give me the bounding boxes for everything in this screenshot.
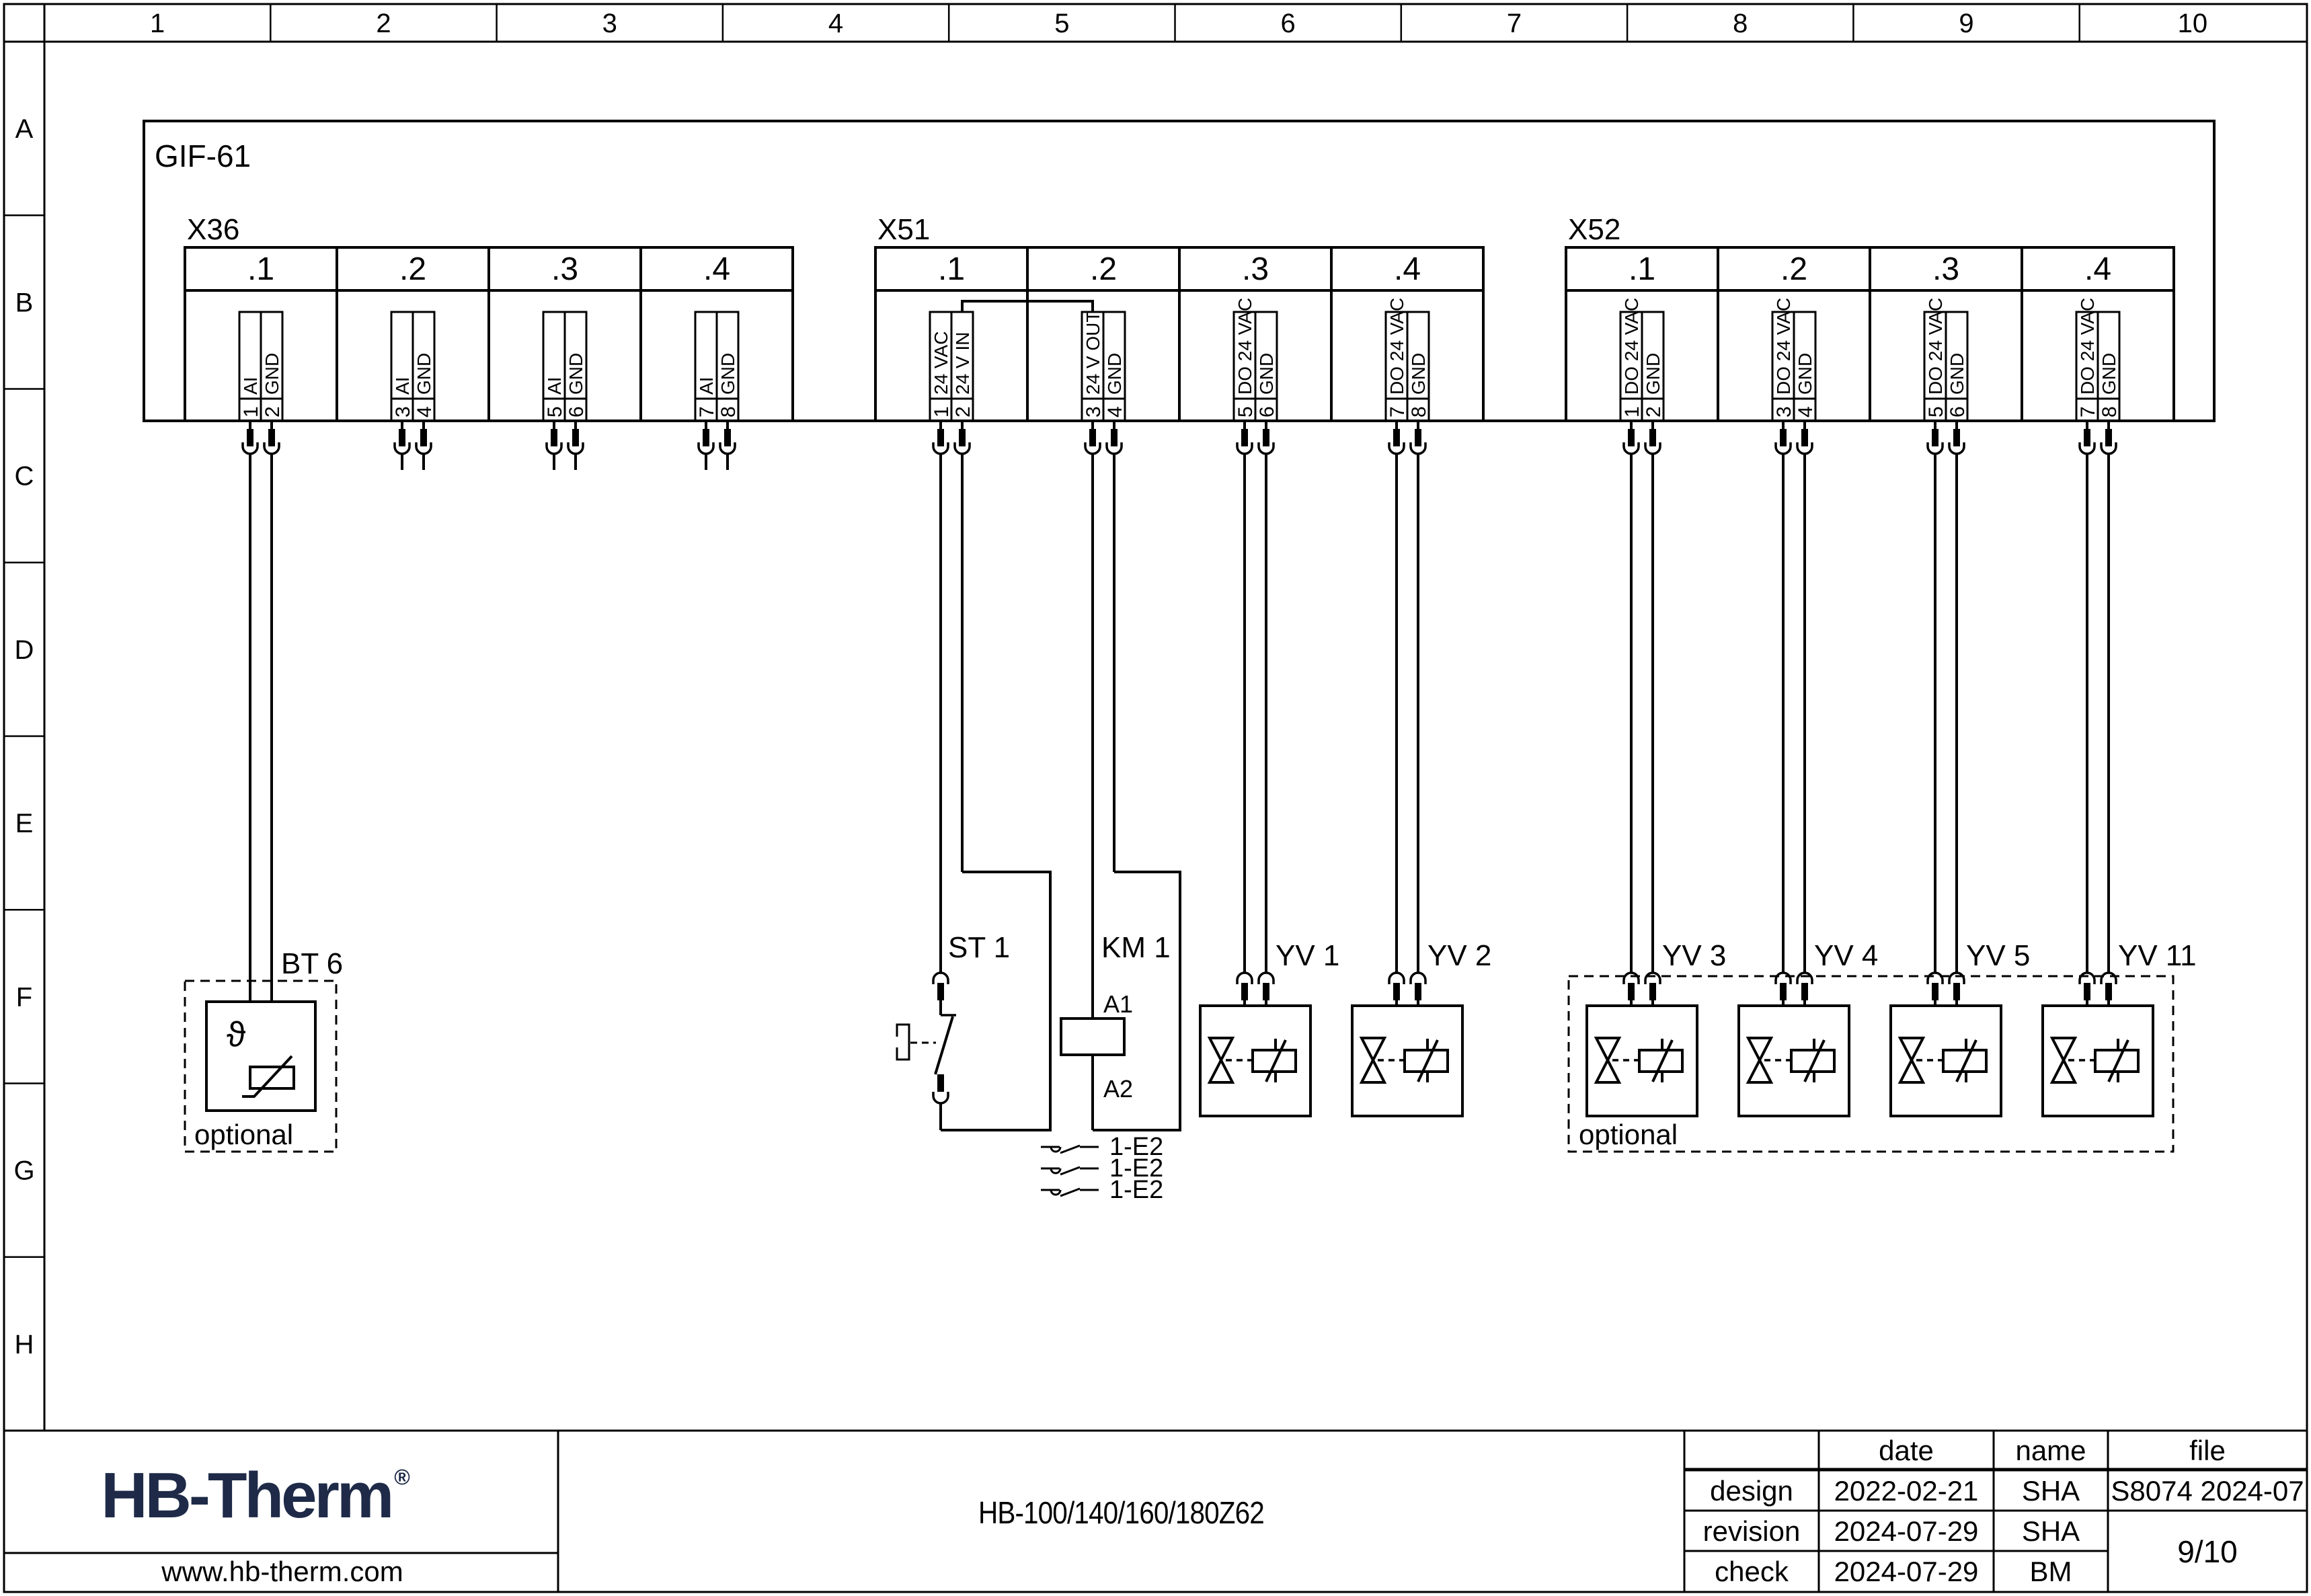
- plug-pin-icon: [551, 429, 557, 446]
- plug-pin-icon: [1801, 983, 1808, 1000]
- st1-label: ST 1: [948, 931, 1010, 964]
- ruler-column-label: 7: [1507, 9, 1522, 38]
- solenoid-coil-icon: [1405, 1050, 1448, 1072]
- company-logo: HB-Therm®: [67, 1452, 444, 1540]
- plug-pin-icon: [703, 429, 709, 446]
- pin-number-label: 4: [1104, 406, 1126, 417]
- plug-pin-icon: [937, 1074, 944, 1092]
- pin-number-label: 3: [1773, 406, 1795, 417]
- solenoid-coil-icon: [1943, 1050, 1986, 1072]
- valve-box: [1352, 1006, 1462, 1116]
- plug-pin-icon: [1393, 429, 1400, 446]
- pin-signal-label: DO 24 VAC: [1235, 298, 1255, 395]
- plug-pin-icon: [1628, 983, 1635, 1000]
- ruler-column-label: 10: [2178, 9, 2208, 38]
- website-url: www.hb-therm.com: [27, 1554, 538, 1589]
- pin-number-label: 1: [1621, 406, 1643, 417]
- switch-blade-icon: [935, 1016, 953, 1074]
- design-name: SHA: [1994, 1471, 2108, 1511]
- plug-socket-icon: [1949, 973, 1964, 984]
- pin-number-label: 1: [240, 406, 262, 417]
- revision-name: SHA: [1994, 1512, 2108, 1551]
- plug-pin-icon: [247, 429, 253, 446]
- ruler-row-label: B: [15, 288, 34, 317]
- km1-a1-label: A1: [1103, 990, 1133, 1018]
- valve-label: YV 5: [1966, 939, 2030, 972]
- plug-pin-icon: [572, 429, 579, 446]
- ruler-row-label: C: [15, 462, 34, 491]
- pin-signal-label: AI: [240, 377, 261, 395]
- schematic-canvas: 12345678910ABCDEFGHGIF-61X36.1AI1GND2.2A…: [0, 0, 2311, 1596]
- plug-pin-icon: [937, 429, 944, 446]
- pin-number-label: 6: [1947, 406, 1969, 417]
- pin-number-label: 5: [1925, 406, 1947, 417]
- pin-number-label: 8: [717, 406, 740, 417]
- plug-socket-icon: [2080, 973, 2094, 984]
- pin-number-label: 4: [414, 406, 436, 417]
- contact-icon: [1060, 1146, 1080, 1153]
- plug-socket-icon: [933, 973, 948, 984]
- ruler-column-label: 5: [1054, 9, 1069, 38]
- pin-signal-label: AI: [696, 377, 717, 395]
- ruler-column-label: 3: [602, 9, 617, 38]
- pin-number-label: 6: [1256, 406, 1278, 417]
- km1-coil-box: [1061, 1019, 1124, 1055]
- section-label: .1: [938, 251, 965, 287]
- plug-socket-icon: [1776, 973, 1791, 984]
- plug-socket-icon: [2101, 973, 2116, 984]
- schematic-page: 12345678910ABCDEFGHGIF-61X36.1AI1GND2.2A…: [0, 0, 2311, 1596]
- optional-note: optional: [194, 1119, 293, 1150]
- pin-number-label: 6: [565, 406, 588, 417]
- plug-pin-icon: [937, 983, 944, 1000]
- ruler-row-label: A: [15, 114, 34, 144]
- column-header-date: date: [1819, 1432, 1994, 1470]
- plug-socket-icon: [1928, 973, 1943, 984]
- pin-signal-label: AI: [544, 377, 565, 395]
- pin-signal-label: AI: [392, 377, 413, 395]
- section-label: .3: [551, 251, 578, 287]
- pin-number-label: 2: [262, 406, 284, 417]
- pin-signal-label: GND: [262, 353, 282, 395]
- valve-label: YV 3: [1662, 939, 1726, 972]
- solenoid-coil-icon: [1639, 1050, 1682, 1072]
- design-date: 2022-02-21: [1819, 1471, 1994, 1511]
- pin-number-label: 4: [1795, 406, 1817, 417]
- pin-signal-label: GND: [717, 353, 738, 395]
- module-label: GIF-61: [155, 138, 251, 173]
- pin-number-label: 3: [1083, 406, 1105, 417]
- valve-box: [2043, 1006, 2153, 1116]
- theta-symbol: ϑ: [227, 1015, 246, 1054]
- plug-socket-icon: [1624, 973, 1639, 984]
- solenoid-coil-icon: [1791, 1050, 1834, 1072]
- plug-socket-icon: [1237, 973, 1252, 984]
- plug-socket-icon: [1411, 973, 1425, 984]
- plug-pin-icon: [1415, 983, 1421, 1000]
- pin-signal-label: DO 24 VAC: [1621, 298, 1642, 395]
- ruler-column-label: 4: [828, 9, 843, 38]
- plug-socket-icon: [1259, 973, 1274, 984]
- pin-signal-label: GND: [1795, 353, 1815, 395]
- contact-icon: [1060, 1167, 1080, 1174]
- ruler-column-label: 1: [150, 9, 165, 38]
- plug-pin-icon: [420, 429, 427, 446]
- section-label: .4: [703, 251, 730, 287]
- plug-pin-icon: [2105, 429, 2112, 446]
- plug-pin-icon: [1263, 983, 1269, 1000]
- section-label: .1: [1629, 251, 1655, 287]
- pin-signal-label: GND: [2099, 353, 2119, 395]
- plug-pin-icon: [1649, 983, 1656, 1000]
- valve-box: [1587, 1006, 1697, 1116]
- pin-number-label: 7: [2077, 406, 2099, 417]
- plug-pin-icon: [1649, 429, 1656, 446]
- pin-signal-label: DO 24 VAC: [1773, 298, 1794, 395]
- column-header-file: file: [2108, 1432, 2307, 1470]
- plug-pin-icon: [2084, 429, 2090, 446]
- pin-number-label: 2: [1643, 406, 1665, 417]
- document-title: HB-100/140/160/180Z62: [558, 1472, 1684, 1553]
- page-border: [4, 4, 2307, 1592]
- plug-pin-icon: [1393, 983, 1400, 1000]
- section-label: .2: [1090, 251, 1117, 287]
- plug-pin-icon: [724, 429, 731, 446]
- ruler-column-label: 2: [376, 9, 391, 38]
- plug-pin-icon: [1263, 429, 1269, 446]
- pin-number-label: 7: [696, 406, 718, 417]
- valve-label: YV 1: [1276, 939, 1339, 972]
- bt6-label: BT 6: [281, 947, 343, 980]
- plug-pin-icon: [1241, 983, 1248, 1000]
- plug-pin-icon: [268, 429, 275, 446]
- ruler-column-label: 8: [1733, 9, 1748, 38]
- km1-label: KM 1: [1101, 931, 1171, 964]
- valve-label: YV 11: [2118, 939, 2197, 972]
- plug-pin-icon: [1780, 429, 1787, 446]
- file-id: S8074 2024-07: [2108, 1471, 2307, 1511]
- actuator-icon: [897, 1025, 909, 1060]
- plug-pin-icon: [1628, 429, 1635, 446]
- plug-pin-icon: [1241, 429, 1248, 446]
- section-label: .2: [1780, 251, 1807, 287]
- pin-number-label: 5: [544, 406, 566, 417]
- plug-pin-icon: [1801, 429, 1808, 446]
- section-label: .1: [247, 251, 274, 287]
- valve-box: [1200, 1006, 1310, 1116]
- row-label-revision: revision: [1684, 1512, 1819, 1551]
- valve-box: [1739, 1006, 1849, 1116]
- plug-pin-icon: [1780, 983, 1787, 1000]
- plug-pin-icon: [2084, 983, 2090, 1000]
- row-label-check: check: [1684, 1552, 1819, 1591]
- ruler-column-label: 9: [1959, 9, 1973, 38]
- plug-pin-icon: [959, 429, 966, 446]
- plug-socket-icon: [1797, 973, 1812, 984]
- connector-label: X36: [187, 213, 239, 246]
- plug-socket-icon: [933, 1092, 948, 1103]
- pin-number-label: 2: [952, 406, 974, 417]
- pin-signal-label: GND: [565, 353, 586, 395]
- valve-box: [1891, 1006, 2001, 1116]
- contact-ref-label: 1-E2: [1109, 1176, 1163, 1204]
- check-date: 2024-07-29: [1819, 1552, 1994, 1591]
- plug-pin-icon: [1932, 429, 1938, 446]
- plug-pin-icon: [1953, 983, 1960, 1000]
- plug-pin-icon: [1111, 429, 1118, 446]
- ruler-row-label: G: [13, 1156, 34, 1186]
- pin-number-label: 8: [2099, 406, 2121, 417]
- solenoid-coil-icon: [2095, 1050, 2138, 1072]
- pin-signal-label: 24 VAC: [931, 331, 951, 395]
- st1-loop-wire: [941, 872, 1050, 1130]
- column-header-name: name: [1994, 1432, 2108, 1470]
- pin-signal-label: GND: [1256, 353, 1277, 395]
- optional-note: optional: [1579, 1119, 1678, 1150]
- page-number: 9/10: [2108, 1512, 2307, 1591]
- ruler-column-label: 6: [1281, 9, 1296, 38]
- valve-label: YV 4: [1814, 939, 1878, 972]
- section-label: .3: [1242, 251, 1269, 287]
- contact-icon: [1060, 1189, 1080, 1196]
- pin-signal-label: GND: [1947, 353, 1967, 395]
- plug-socket-icon: [1645, 973, 1660, 984]
- pin-signal-label: 24 V IN: [952, 332, 973, 395]
- pin-number-label: 5: [1235, 406, 1257, 417]
- km1-a2-label: A2: [1103, 1075, 1133, 1103]
- section-label: .2: [399, 251, 426, 287]
- plug-pin-icon: [1953, 429, 1960, 446]
- check-name: BM: [1994, 1552, 2108, 1591]
- connector-label: X51: [877, 213, 930, 246]
- pin-signal-label: GND: [1104, 353, 1125, 395]
- row-label-design: design: [1684, 1471, 1819, 1511]
- logo-text: HB-Therm: [101, 1459, 391, 1533]
- plug-pin-icon: [1415, 429, 1421, 446]
- pin-number-label: 7: [1386, 406, 1409, 417]
- registered-mark: ®: [394, 1465, 410, 1490]
- plug-pin-icon: [2105, 983, 2112, 1000]
- ruler-row-label: H: [15, 1330, 34, 1359]
- bt6-sensor-box: [206, 1002, 315, 1111]
- plug-socket-icon: [1389, 973, 1404, 984]
- pin-signal-label: GND: [1643, 353, 1663, 395]
- pin-signal-label: GND: [1408, 353, 1429, 395]
- pin-number-label: 3: [392, 406, 414, 417]
- pin-signal-label: GND: [414, 353, 434, 395]
- revision-date: 2024-07-29: [1819, 1512, 1994, 1551]
- connector-label: X52: [1568, 213, 1620, 246]
- pin-signal-label: 24 V OUT: [1083, 311, 1103, 395]
- pin-signal-label: DO 24 VAC: [2077, 298, 2098, 395]
- pin-signal-label: DO 24 VAC: [1386, 298, 1407, 395]
- valve-label: YV 2: [1427, 939, 1491, 972]
- section-label: .4: [1394, 251, 1421, 287]
- plug-pin-icon: [399, 429, 405, 446]
- pin-number-label: 8: [1408, 406, 1430, 417]
- plug-pin-icon: [1089, 429, 1096, 446]
- ruler-row-label: D: [15, 635, 34, 665]
- section-label: .4: [2084, 251, 2111, 287]
- plug-pin-icon: [1932, 983, 1938, 1000]
- ruler-row-label: E: [15, 809, 34, 838]
- ruler-row-label: F: [16, 982, 32, 1012]
- pin-number-label: 1: [931, 406, 953, 417]
- section-label: .3: [1932, 251, 1959, 287]
- pin-signal-label: DO 24 VAC: [1925, 298, 1946, 395]
- solenoid-coil-icon: [1253, 1050, 1296, 1072]
